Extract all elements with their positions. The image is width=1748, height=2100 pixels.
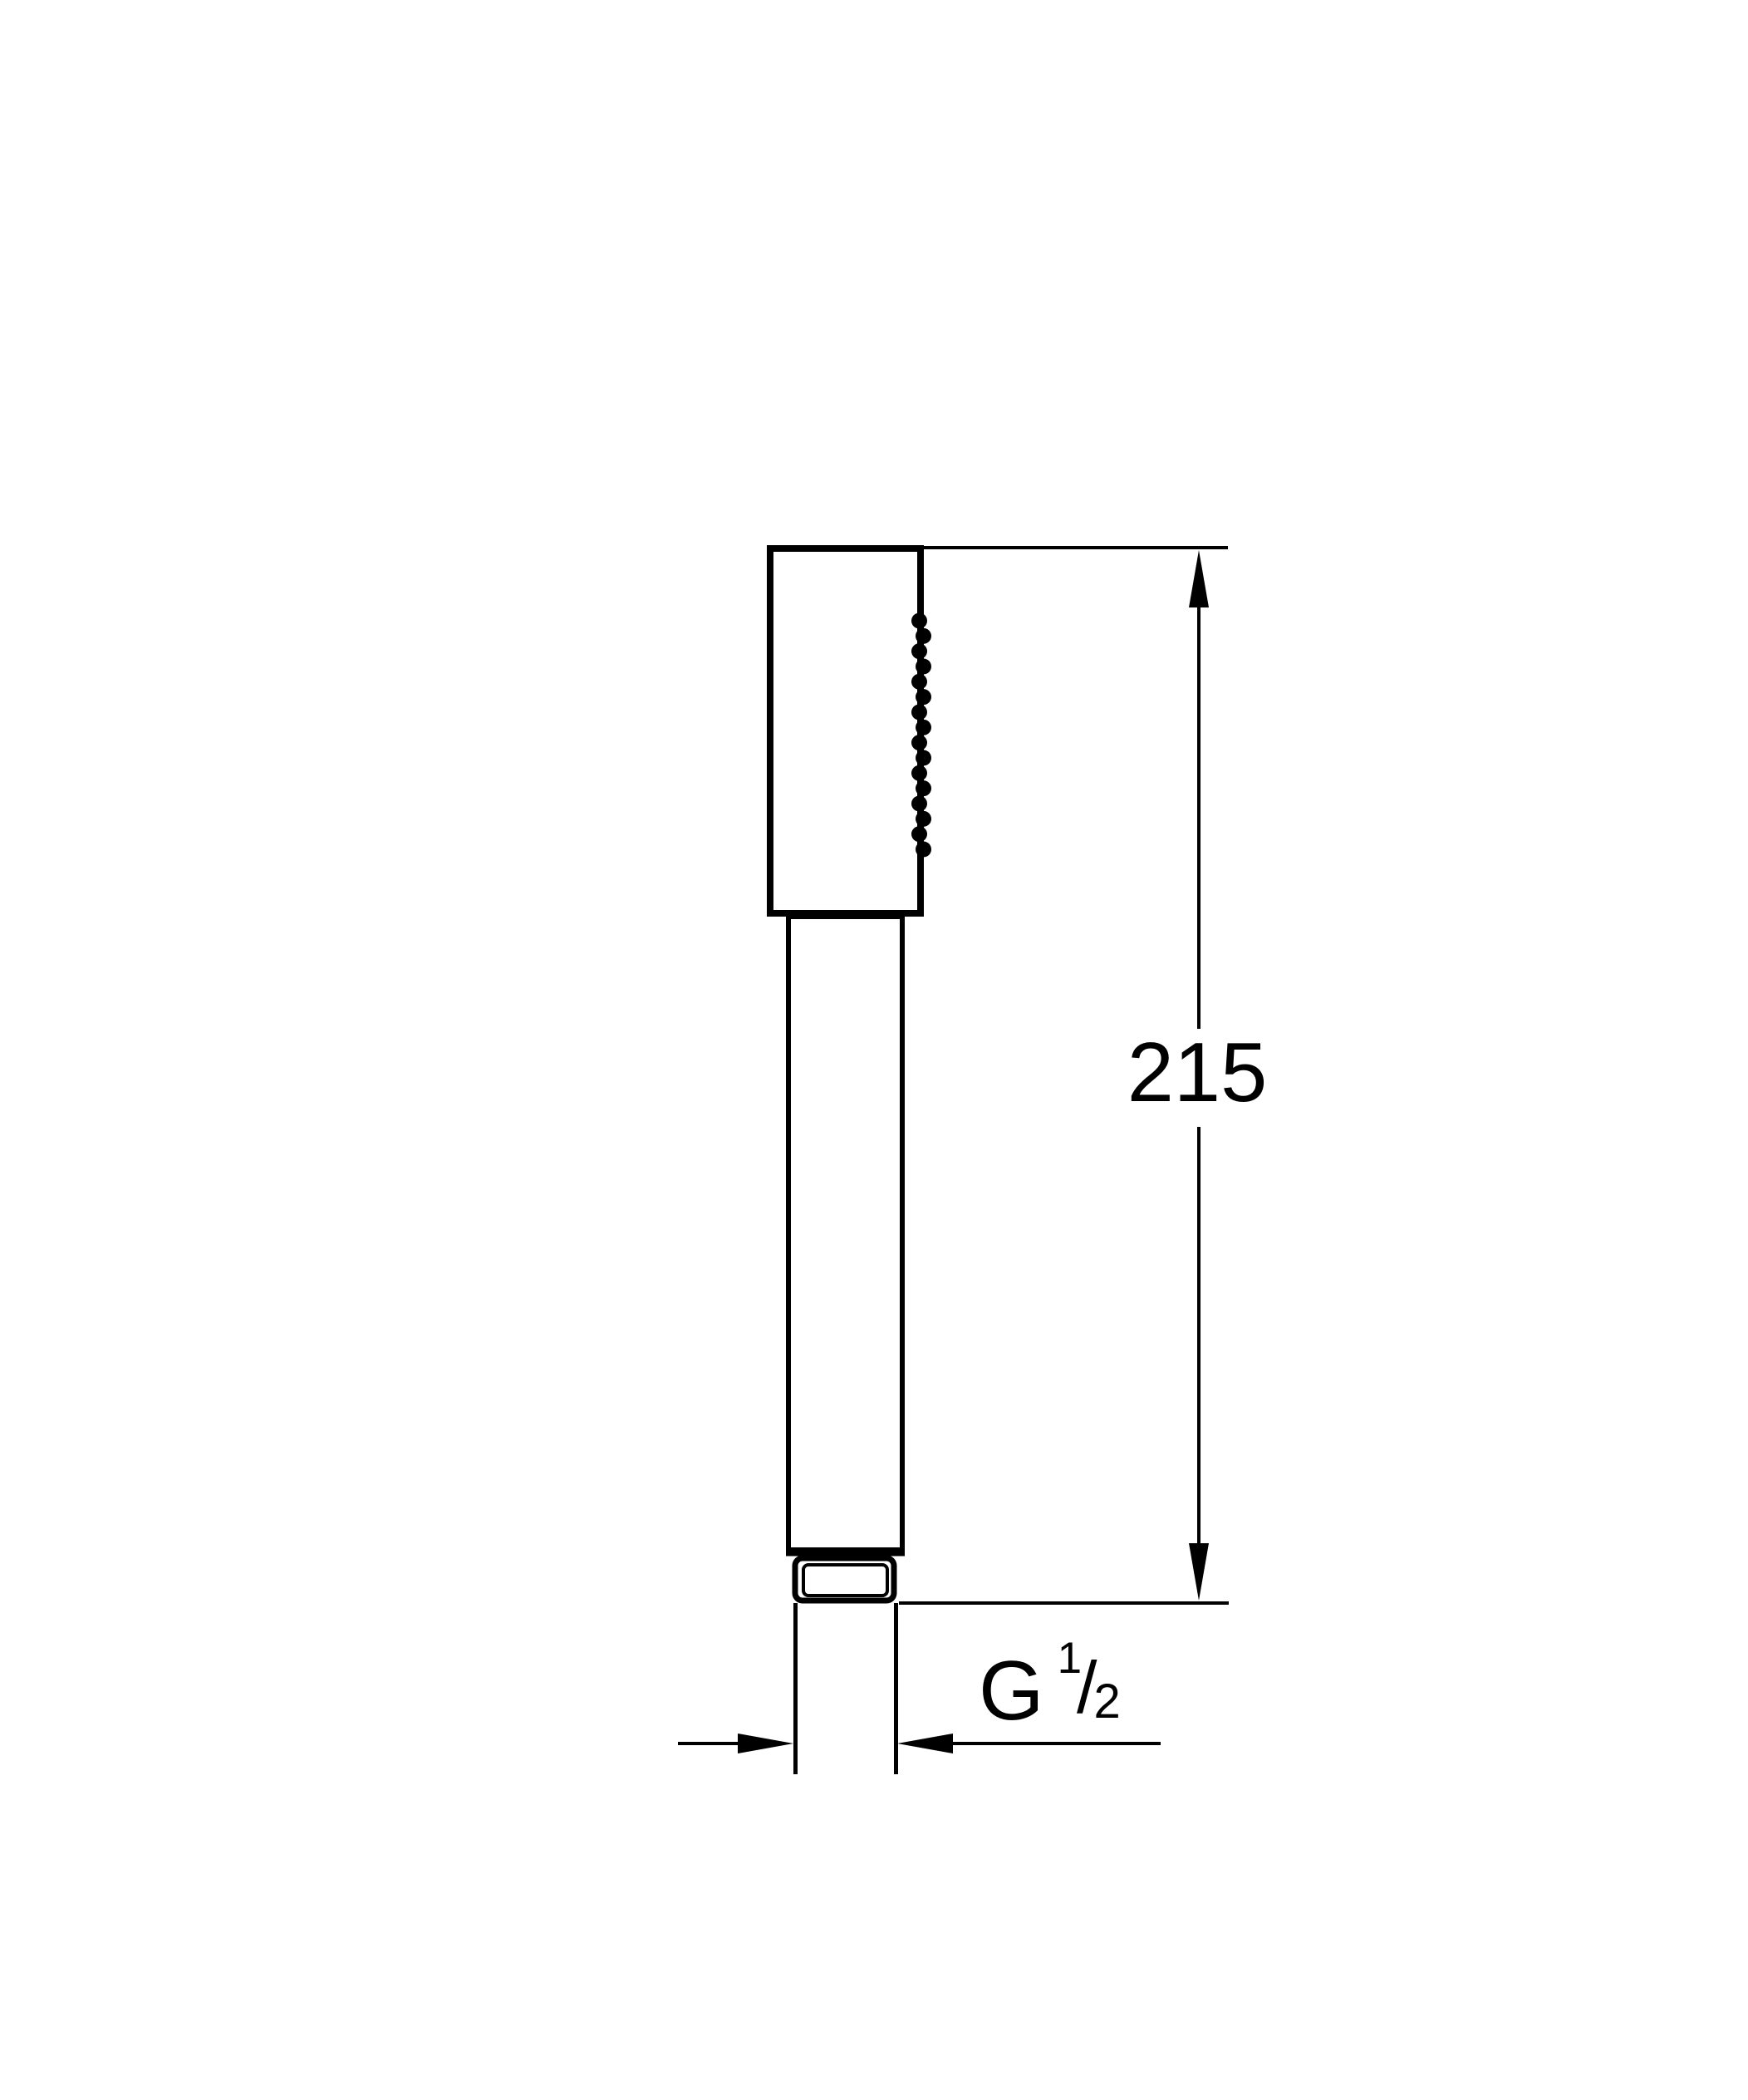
nozzle-dot [916,842,931,858]
nozzle-dot [911,643,927,659]
nozzle-dot [911,765,927,781]
nozzle-dot [911,796,927,812]
shower-head-body-outline [770,548,921,913]
thread-size-letter: G [979,1645,1044,1738]
nozzle-dot [911,674,927,690]
nozzle-dot [916,750,931,766]
nozzle-dot [916,628,931,644]
arrow-left-icon [897,1734,953,1753]
shower-handle-outline [788,917,902,1550]
nozzle-dot [916,780,931,796]
thread-size-label: G1/2 [979,1650,1121,1734]
arrow-right-icon [738,1734,793,1753]
nozzle-dot [911,826,927,842]
nozzle-dot [911,705,927,720]
technical-drawing-page: 215 G1/2 [0,0,1748,2100]
nozzle-dot [911,735,927,750]
arrow-up-icon [1189,550,1209,607]
height-dimension-label: 215 [1127,1031,1268,1115]
thread-size-denominator: 2 [1094,1675,1121,1729]
nozzle-dot [916,689,931,705]
hand-shower-dimension-drawing [0,0,1748,2100]
nozzle-dot [916,720,931,735]
nozzle-dot [916,811,931,827]
nozzle-dot [916,659,931,675]
arrow-down-icon [1189,1543,1209,1601]
nozzle-dot [911,613,927,629]
